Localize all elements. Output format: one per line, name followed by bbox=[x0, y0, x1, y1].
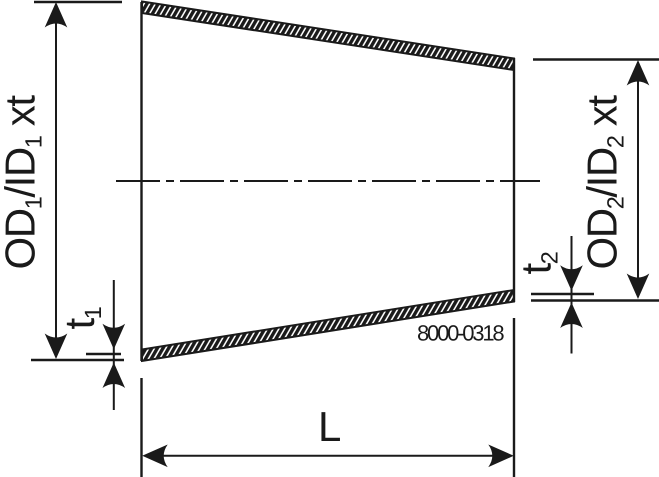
svg-text:OD1/ID1 xt: OD1/ID1 xt bbox=[0, 95, 47, 270]
svg-text:OD2/ID2 xt: OD2/ID2 xt bbox=[579, 95, 629, 270]
svg-text:8000-0318: 8000-0318 bbox=[417, 321, 504, 346]
svg-text:L: L bbox=[318, 403, 341, 450]
